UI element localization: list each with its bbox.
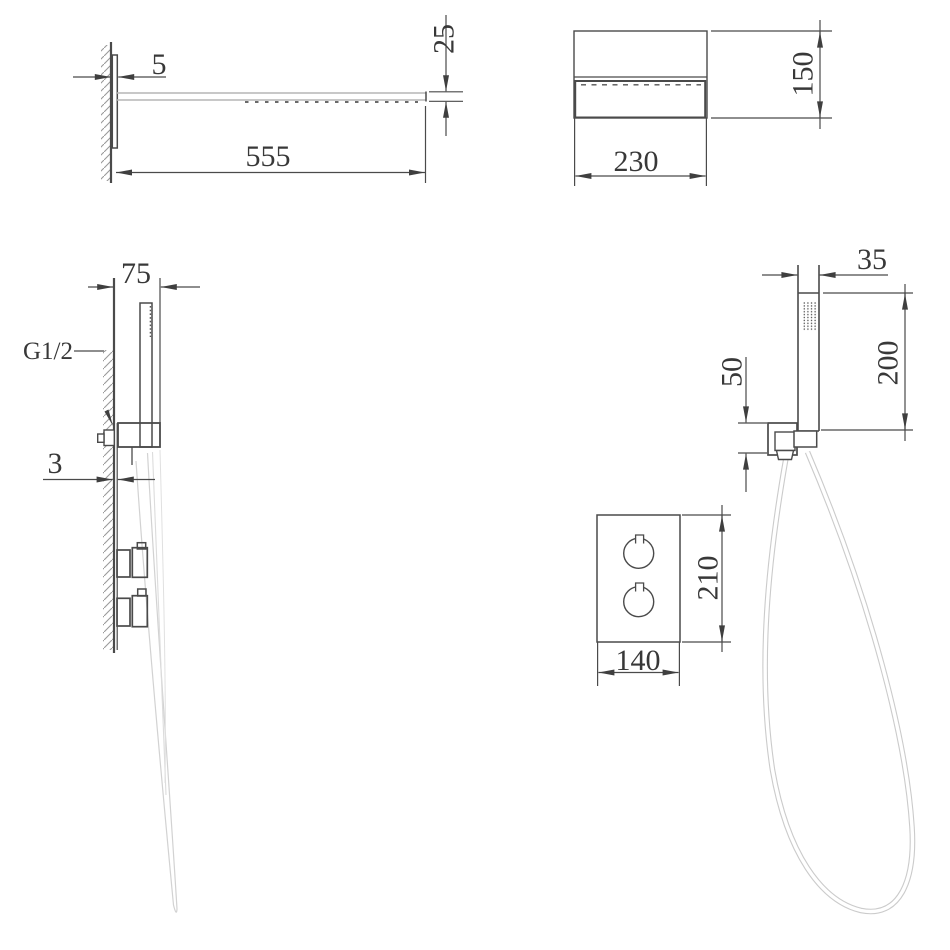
valve-knob-1-tab — [636, 535, 644, 544]
dim-50-label: 50 — [716, 357, 749, 387]
hand-shower-hose-loop-core — [765, 452, 912, 911]
dim-25-label: 25 — [428, 24, 461, 54]
dim-3-label: 3 — [48, 447, 63, 480]
dim-210-label: 210 — [692, 556, 725, 601]
valve-plate — [597, 515, 680, 642]
head-lower-shell — [575, 81, 705, 118]
dim-150-label: 150 — [787, 52, 820, 97]
valve-knob-2-grip — [132, 596, 147, 627]
outlet-elbow-nut — [777, 451, 794, 460]
valve-knob-1-base — [117, 550, 130, 577]
hand-shower-hose-loop — [765, 452, 912, 911]
valve-knob-2-tab — [636, 583, 644, 592]
dim-75-label: 75 — [121, 257, 151, 290]
wall-hatching — [103, 350, 114, 650]
dim-230-label: 230 — [614, 145, 659, 178]
valve-knob-1-grip — [132, 548, 147, 578]
dim-140-label: 140 — [616, 644, 661, 677]
hand-shower-hose-side-inner2 — [160, 450, 165, 783]
hand-shower-hose-side — [136, 453, 177, 912]
thread-size-label: G1/2 — [23, 338, 73, 365]
view-hand-shower-side — [43, 278, 200, 912]
handle-spray-face — [802, 302, 817, 332]
handle-hose-nut — [794, 431, 817, 447]
dim-555-label: 555 — [246, 140, 291, 173]
technical-drawing-page: 5 555 25 230 150 — [0, 0, 950, 950]
holder-bracket — [118, 423, 160, 447]
technical-drawing-canvas: 5 555 25 230 150 — [0, 0, 950, 950]
dim-200-label: 200 — [872, 341, 905, 386]
wall-hatching — [101, 45, 111, 181]
dim-35-label: 35 — [857, 243, 887, 276]
dim-5-label: 5 — [152, 48, 167, 81]
head-body-outline — [574, 31, 707, 118]
valve-knob-2-base — [117, 598, 130, 626]
wall-supply-fitting — [104, 430, 114, 446]
wall-supply-fitting-stub — [98, 434, 104, 442]
head-mounting-plate — [112, 55, 117, 148]
